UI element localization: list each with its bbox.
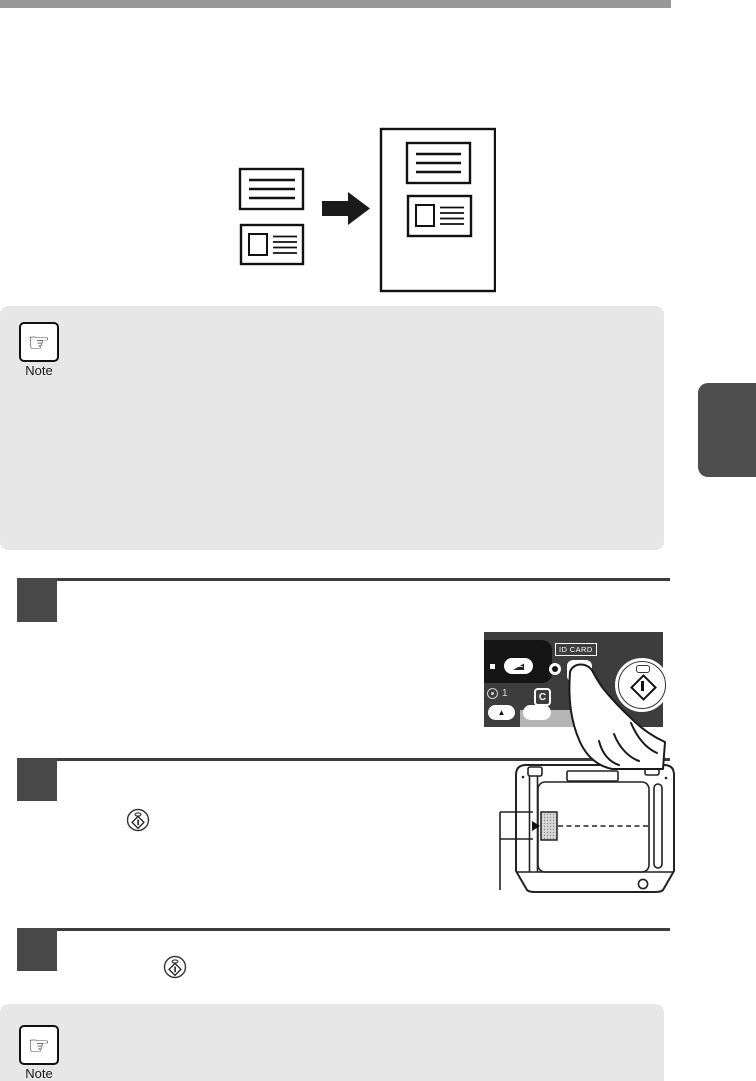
pointing-hand-icon: ☞ bbox=[28, 330, 50, 355]
note-icon-frame: ☞ bbox=[19, 1025, 59, 1065]
panel-display-area bbox=[484, 640, 552, 683]
manual-page: ☞ Note ID CARD 1 C ▲ bbox=[0, 0, 756, 1081]
step-1-marker bbox=[17, 578, 57, 622]
note-box-top: ☞ Note bbox=[0, 306, 664, 550]
page-header-bar bbox=[0, 0, 671, 8]
panel-square-led bbox=[490, 664, 495, 669]
copies-icon bbox=[487, 688, 498, 699]
note-box-bottom: ☞ Note bbox=[0, 1004, 664, 1081]
note-badge: ☞ Note bbox=[17, 322, 61, 378]
id-card-on-glass bbox=[541, 812, 557, 840]
exposure-mode-icon bbox=[512, 662, 525, 671]
note-badge: ☞ Note bbox=[17, 1025, 61, 1081]
note-icon-frame: ☞ bbox=[19, 322, 59, 362]
pressing-finger-illustration bbox=[545, 650, 670, 770]
copy-quantity-value: 1 bbox=[502, 688, 508, 699]
chapter-side-tab bbox=[698, 383, 756, 477]
copied-card-front bbox=[408, 196, 471, 236]
step-2-marker bbox=[17, 758, 57, 801]
quantity-up-key: ▲ bbox=[488, 705, 515, 720]
card-front-illustration bbox=[241, 225, 303, 264]
note-label: Note bbox=[17, 363, 61, 378]
start-key-icon bbox=[162, 954, 188, 980]
document-glass-figure bbox=[495, 760, 676, 897]
exposure-mode-key bbox=[504, 658, 533, 674]
step-3-divider bbox=[17, 928, 670, 931]
start-key-icon bbox=[125, 807, 151, 833]
step-1-divider bbox=[17, 578, 670, 581]
id-card-copy-diagram bbox=[238, 127, 496, 293]
pointing-hand-icon: ☞ bbox=[28, 1033, 50, 1058]
note-label: Note bbox=[17, 1066, 61, 1081]
step-3-marker bbox=[17, 928, 57, 971]
copy-quantity-display: 1 bbox=[487, 688, 508, 699]
right-arrow-icon bbox=[322, 192, 370, 225]
